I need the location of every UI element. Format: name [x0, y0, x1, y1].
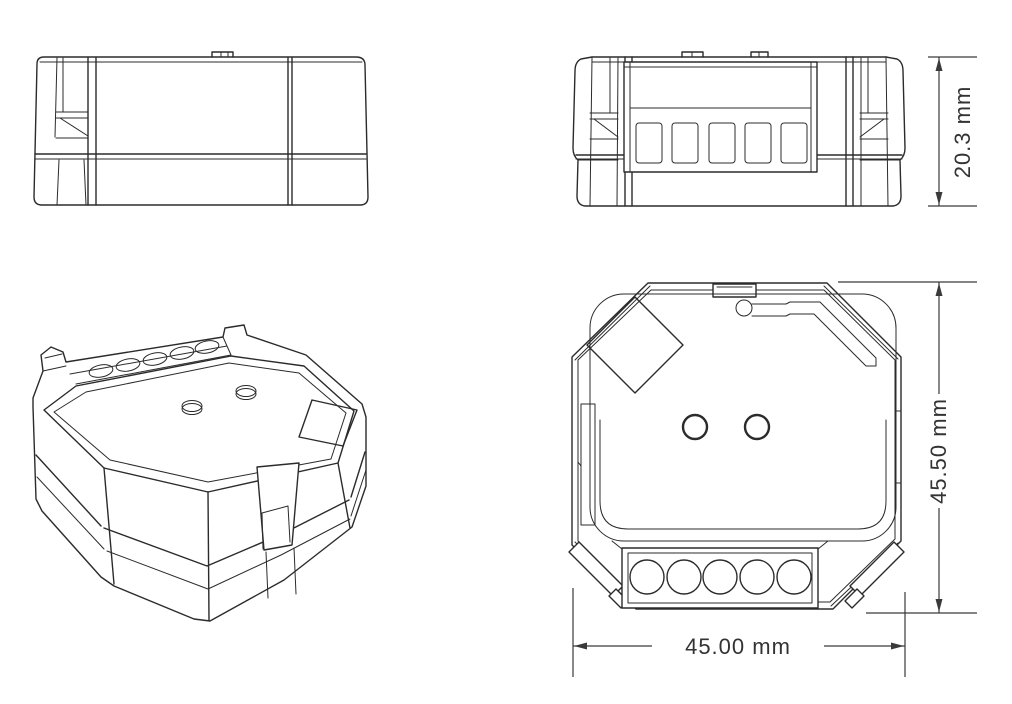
dimension-height: 20.3 mm — [928, 57, 977, 206]
dimension-depth: 45.50 mm — [838, 282, 977, 613]
top-view — [569, 283, 904, 609]
front-view — [573, 52, 905, 206]
side-view — [34, 52, 368, 205]
depth-dimension-label: 45.50 mm — [926, 398, 951, 504]
isometric-view — [33, 325, 366, 621]
drawing-svg: 20.3 mm — [0, 0, 1012, 704]
technical-drawing-canvas: 20.3 mm — [0, 0, 1012, 704]
width-dimension-label: 45.00 mm — [685, 634, 791, 659]
height-dimension-label: 20.3 mm — [950, 86, 975, 179]
